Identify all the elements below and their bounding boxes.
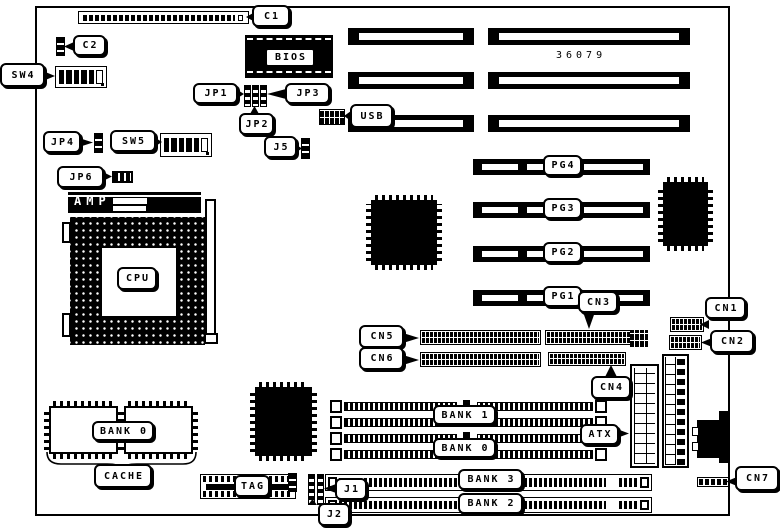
usb-pin-header xyxy=(319,109,345,125)
chipset-qfp-center xyxy=(366,195,442,270)
socket-tab xyxy=(62,313,71,337)
bios-label: BIOS xyxy=(266,49,314,66)
bank0-cache-label: BANK 0 xyxy=(92,421,154,441)
ps2-mount-pin xyxy=(692,442,699,451)
c1-connector-strip xyxy=(78,11,249,24)
c1-callout: C1 xyxy=(252,5,290,27)
amp-label: AMP xyxy=(74,194,111,208)
cn6-callout: CN6 xyxy=(359,347,404,370)
cn4-callout: CN4 xyxy=(591,376,631,399)
fan-pin-block xyxy=(630,330,648,347)
pg2-label: PG2 xyxy=(543,242,582,263)
socket-lever-foot xyxy=(204,333,218,344)
c2-callout: C2 xyxy=(73,35,106,56)
atx-power-connector xyxy=(630,364,659,468)
cn2-callout: CN2 xyxy=(710,330,754,353)
usb-callout: USB xyxy=(350,104,393,128)
at-power-connector xyxy=(662,354,689,468)
cn2-pin-header xyxy=(669,335,702,350)
sw4-callout: SW4 xyxy=(0,63,45,87)
sw5-callout: SW5 xyxy=(110,130,156,152)
cn7-connector xyxy=(697,477,729,487)
ps2-mount-pin xyxy=(692,427,699,436)
pg3-label: PG3 xyxy=(543,198,582,219)
jp4-component xyxy=(94,133,103,153)
j2-callout: J2 xyxy=(318,503,350,526)
atx-callout: ATX xyxy=(580,424,619,445)
pg4-label: PG4 xyxy=(543,155,582,176)
sw4-dip-switch xyxy=(55,66,107,88)
socket-lever xyxy=(205,199,216,336)
bank0-simm-label: BANK 0 xyxy=(433,438,496,458)
cn4-pin-header xyxy=(548,352,626,366)
cn3-callout: CN3 xyxy=(578,291,618,313)
cn1-pin-header xyxy=(670,317,704,332)
jp3-callout: JP3 xyxy=(285,83,330,104)
cn7-callout: CN7 xyxy=(735,466,779,491)
isa-slot xyxy=(348,28,474,45)
isa-slot xyxy=(488,28,690,45)
cn5-callout: CN5 xyxy=(359,325,404,348)
isa-slot xyxy=(488,115,690,132)
j1-jumper-block xyxy=(308,474,325,505)
isa-slot xyxy=(488,72,690,89)
chipset-qfp-bottom xyxy=(250,382,317,461)
bank2-label: BANK 2 xyxy=(458,493,523,514)
tag-callout: TAG xyxy=(234,475,270,497)
jp1-callout: JP1 xyxy=(193,83,238,104)
cn1-callout: CN1 xyxy=(705,297,746,319)
part-number: 36079 xyxy=(556,50,606,61)
jp6-callout: JP6 xyxy=(57,166,104,188)
pg1-label: PG1 xyxy=(543,286,582,307)
cpu-label: CPU xyxy=(117,267,157,290)
j5-callout: J5 xyxy=(264,136,297,158)
motherboard-diagram: C1 C2 SW4 BIOS JP1 JP3 JP2 USB J5 JP4 SW… xyxy=(0,0,780,530)
sw5-dip-switch xyxy=(160,133,212,157)
c2-component xyxy=(56,37,65,56)
socket-tab xyxy=(62,222,71,243)
cache-callout: CACHE xyxy=(94,464,152,488)
jp-jumper-block xyxy=(244,85,268,107)
ps2-connector-edge xyxy=(719,411,730,463)
cn5-pin-header xyxy=(420,330,541,345)
isa-slot xyxy=(348,72,474,89)
io-qfp-right xyxy=(658,177,713,251)
jp2-callout: JP2 xyxy=(239,113,274,135)
bank1-label: BANK 1 xyxy=(433,405,496,425)
j5-component xyxy=(301,138,310,159)
jp4-callout: JP4 xyxy=(43,131,81,153)
cn6-pin-header xyxy=(420,352,541,367)
bank3-label: BANK 3 xyxy=(458,469,523,490)
jp6-component xyxy=(112,171,133,183)
connector-small xyxy=(288,473,297,492)
j1-callout: J1 xyxy=(335,478,367,500)
